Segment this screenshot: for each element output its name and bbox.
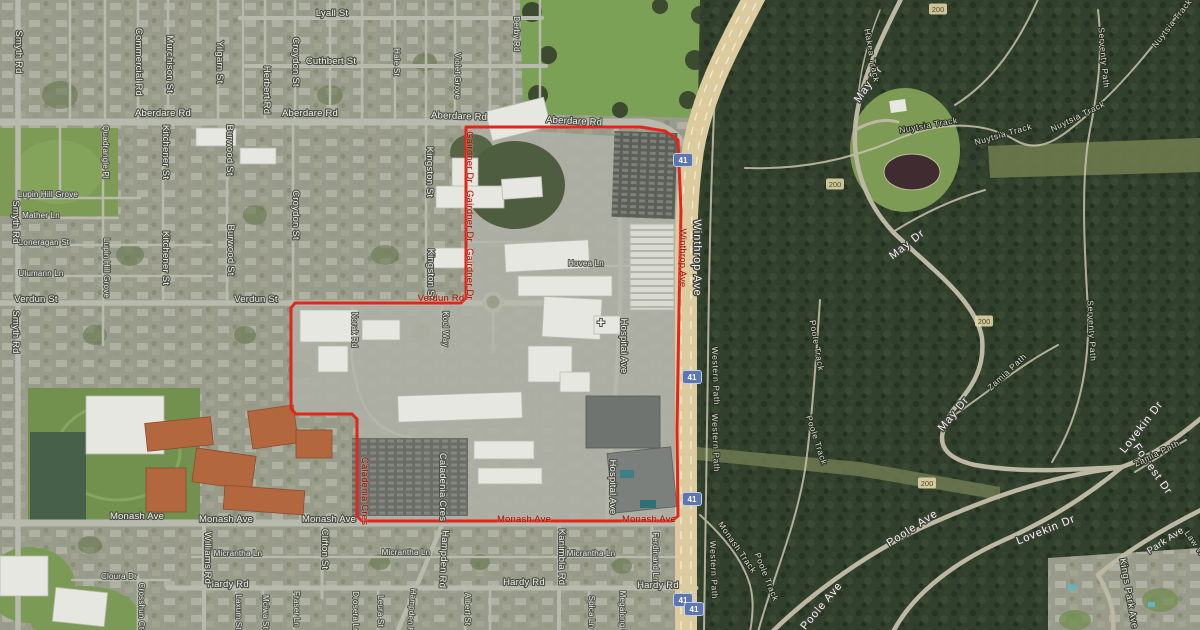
road-label: Winthrop Ave <box>691 219 703 296</box>
road-label: Commercial Rd <box>133 28 144 96</box>
road-label: Verdun St <box>234 294 278 305</box>
road-label: Leura St <box>376 595 385 627</box>
contour-value: 200 <box>978 317 991 326</box>
road-label: Lupin Hill Grove <box>102 238 111 298</box>
map-viewport[interactable]: 4141414141200200200200 Lyall StCuthbert … <box>0 0 1200 630</box>
road-label: Smyth Rd <box>10 200 21 243</box>
road-label: Megalong Pl <box>618 591 627 630</box>
satellite-map[interactable]: 4141414141200200200200 Lyall StCuthbert … <box>0 0 1200 630</box>
road-label: Burwood St <box>225 224 236 275</box>
contour-marker: 200 <box>918 478 936 489</box>
roundabout <box>485 294 502 311</box>
road-label: Norak Rd <box>350 312 359 347</box>
route-shield-number: 41 <box>688 495 697 504</box>
route-shield-number: 41 <box>679 156 688 165</box>
route-shield-number: 41 <box>688 373 697 382</box>
contour-value: 200 <box>921 479 934 488</box>
road-label: Mather Ln <box>22 211 60 220</box>
road-label: Kitchener St <box>160 125 171 179</box>
road-label: Cuthbert St <box>306 56 356 67</box>
lake <box>884 154 940 190</box>
boundary-road-label: Monash Ave <box>622 514 676 525</box>
boundary-road-label: Gairdner Dr <box>464 131 475 183</box>
route-shield: 41 <box>685 603 704 616</box>
boundary-road-label: Caladenia Cres <box>359 457 370 525</box>
road-label: Kitchener St <box>160 231 171 285</box>
route-shield: 41 <box>683 371 702 384</box>
road-label: Hovea Ln <box>568 259 604 268</box>
road-label: Aberdare Rd <box>135 108 191 119</box>
contour-value: 200 <box>932 5 945 14</box>
road-label: Western Path <box>710 346 722 405</box>
road-label: Western Path <box>708 540 720 599</box>
road-label: Herbert Rd <box>261 66 272 114</box>
road-label: Monash Ave <box>302 514 356 525</box>
boundary-road-label: Winthrop Ave <box>677 229 688 288</box>
contour-marker: 200 <box>929 4 947 15</box>
route-shield: 41 <box>674 154 693 167</box>
road-label: Monash Ave <box>199 514 253 525</box>
road-label: Williams Rd <box>202 532 213 584</box>
boundary-road-label: Gairdner Dr <box>464 248 475 300</box>
boundary-road-label: Monash Ave <box>497 514 551 525</box>
contour-marker: 200 <box>975 316 993 327</box>
road-label: Kingston St <box>425 249 436 300</box>
road-label: Fraser Ln <box>292 591 301 627</box>
road-label: Kool Way <box>441 311 450 347</box>
road-label: Smyth Rd <box>10 310 21 353</box>
road-label: Ulumann Ln <box>18 269 63 278</box>
route-shield-number: 41 <box>690 605 699 614</box>
road-label: Crosshun Ct <box>137 583 146 630</box>
road-label: Ferdinand Ln <box>651 532 660 582</box>
road-label: Micrantha Ln <box>214 549 263 558</box>
road-label: Violet Grove <box>453 53 462 100</box>
road-label: Spica Ln <box>587 596 596 629</box>
route-shield: 41 <box>683 493 702 506</box>
road-label: Albert St <box>463 593 472 626</box>
road-label: Verdun St <box>14 294 58 305</box>
road-label: Lyall St <box>316 8 349 19</box>
boundary-road-label: Gairdner Dr <box>464 190 475 242</box>
road-label: Hardy Rd <box>503 577 545 588</box>
contour-value: 200 <box>829 180 842 189</box>
road-label: Cloura Dr <box>101 572 137 581</box>
road-label: Monash Ave <box>110 511 164 522</box>
road-label: Drosera Ln <box>351 591 360 630</box>
road-label: Murchison St <box>164 35 175 93</box>
road-label: Burwood St <box>224 124 235 175</box>
park-building <box>889 99 907 113</box>
road-label: Caladenia Cres <box>437 453 448 521</box>
road-label: Mciwa St <box>261 595 270 630</box>
contour-marker: 200 <box>826 179 844 190</box>
road-label: Western Path <box>710 413 722 472</box>
road-label: Lupin Hill Grove <box>18 190 78 199</box>
road-label: Micrantha Ln <box>567 549 616 558</box>
road-label: Laxum St <box>234 594 243 630</box>
road-label: Smyth Rd <box>13 30 24 73</box>
road-label: Micrantha Ln <box>382 548 431 557</box>
road-label: Hale St <box>392 48 401 76</box>
road-label: Yilgarn St <box>214 41 225 84</box>
road-label: Kingston St <box>424 147 435 198</box>
road-label: Aberdare Rd <box>431 110 487 123</box>
road-label: Hospital Ave <box>618 318 629 373</box>
road-label: Quadrangle Pl <box>101 125 110 179</box>
road-label: Croydon St <box>290 190 301 240</box>
road-label: Aberdare Rd <box>282 108 338 119</box>
helipad-cross-icon: + <box>597 314 605 330</box>
boundary-road-label: Verdun Rd <box>418 293 465 304</box>
road-label: Derby Rd <box>512 16 521 51</box>
road-label: Kanimbla Rd <box>556 529 567 586</box>
road-label: Clifton St <box>319 529 330 570</box>
road-label: Loneragan St <box>19 238 70 247</box>
road-label: Croydon St <box>290 37 301 87</box>
tennis-courts <box>30 432 86 520</box>
road-label: Hospital Ave <box>607 459 618 514</box>
